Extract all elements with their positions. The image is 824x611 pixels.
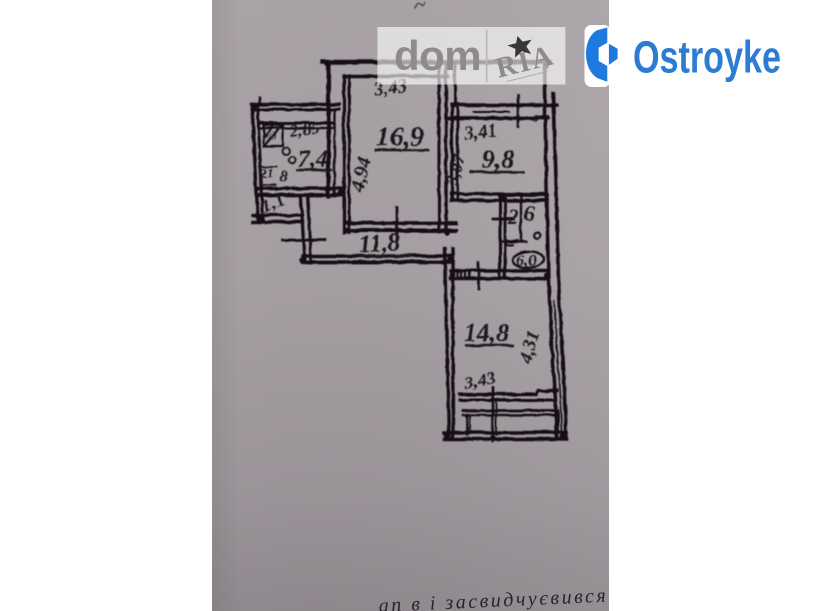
svg-text:2: 2	[506, 203, 518, 228]
svg-text:6: 6	[523, 200, 534, 225]
svg-text:3,41: 3,41	[461, 120, 497, 144]
svg-text:8: 8	[279, 168, 287, 185]
svg-text:6,0: 6,0	[516, 252, 536, 269]
svg-text:9,8: 9,8	[481, 144, 514, 173]
svg-text:dom: dom	[394, 32, 481, 79]
svg-text:7,4: 7,4	[297, 146, 327, 172]
svg-text:16,9: 16,9	[376, 121, 424, 151]
svg-text:Р/д: Р/д	[261, 130, 276, 143]
svg-text:Ostroyke: Ostroyke	[633, 32, 781, 83]
svg-text:11,8: 11,8	[358, 229, 400, 258]
svg-text:14,8: 14,8	[463, 318, 509, 347]
svg-text:2,85: 2,85	[287, 117, 320, 140]
